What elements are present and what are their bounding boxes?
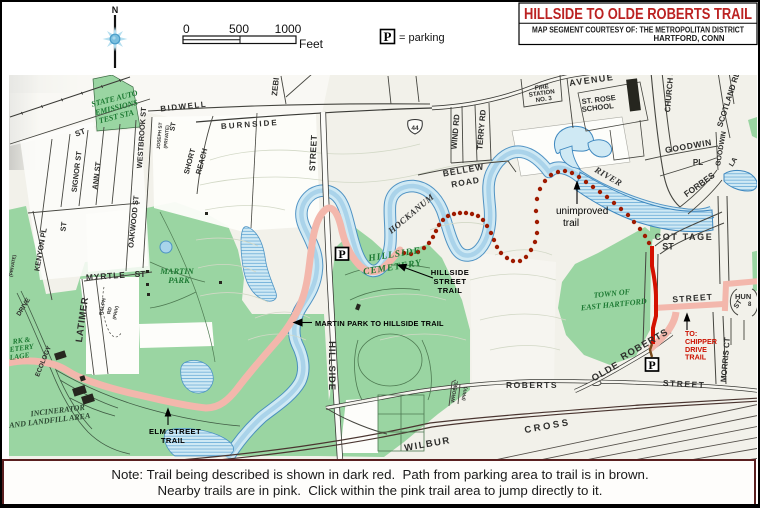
svg-text:unimproved: unimproved xyxy=(556,206,608,217)
svg-text:PARK: PARK xyxy=(168,275,191,285)
svg-text:TRAIL: TRAIL xyxy=(161,436,185,445)
svg-text:500: 500 xyxy=(229,22,249,36)
svg-text:HARTFORD, CONN: HARTFORD, CONN xyxy=(653,34,724,43)
svg-text:COT TAGE: COT TAGE xyxy=(655,232,714,242)
svg-text:ST: ST xyxy=(662,242,674,252)
svg-text:MARTIN PARK TO HILLSIDE TRAIL: MARTIN PARK TO HILLSIDE TRAIL xyxy=(315,319,444,328)
svg-text:TRAIL: TRAIL xyxy=(438,286,463,295)
svg-text:STREET: STREET xyxy=(434,277,467,286)
svg-text:1000: 1000 xyxy=(275,22,302,36)
svg-text:PL: PL xyxy=(693,158,703,167)
svg-text:ST: ST xyxy=(135,269,147,279)
svg-text:P: P xyxy=(338,247,345,261)
svg-text:N: N xyxy=(112,5,119,15)
svg-text:HILLSIDE: HILLSIDE xyxy=(431,268,470,277)
svg-text:= parking: = parking xyxy=(399,32,445,44)
svg-text:trail: trail xyxy=(563,218,579,229)
svg-text:ST: ST xyxy=(58,221,68,232)
svg-text:HILLSIDE TO OLDE ROBERTS TRAIL: HILLSIDE TO OLDE ROBERTS TRAIL xyxy=(524,6,752,23)
svg-text:STREET: STREET xyxy=(307,134,319,171)
svg-text:ZEBI: ZEBI xyxy=(270,77,281,96)
svg-text:HILLSIDE: HILLSIDE xyxy=(326,341,337,391)
svg-text:ELM STREET: ELM STREET xyxy=(149,427,201,436)
svg-text:Nearby trails are in pink. Cl: Nearby trails are in pink. Click within … xyxy=(158,483,603,498)
svg-text:Feet: Feet xyxy=(299,37,324,51)
svg-text:Note: Trail being described is: Note: Trail being described is shown in … xyxy=(111,467,648,482)
svg-text:44: 44 xyxy=(411,125,419,132)
svg-text:ROBERTS: ROBERTS xyxy=(506,380,558,390)
svg-text:P: P xyxy=(384,29,392,44)
svg-text:TRAIL: TRAIL xyxy=(685,353,707,362)
svg-text:P: P xyxy=(648,358,655,372)
svg-text:0: 0 xyxy=(183,22,190,36)
